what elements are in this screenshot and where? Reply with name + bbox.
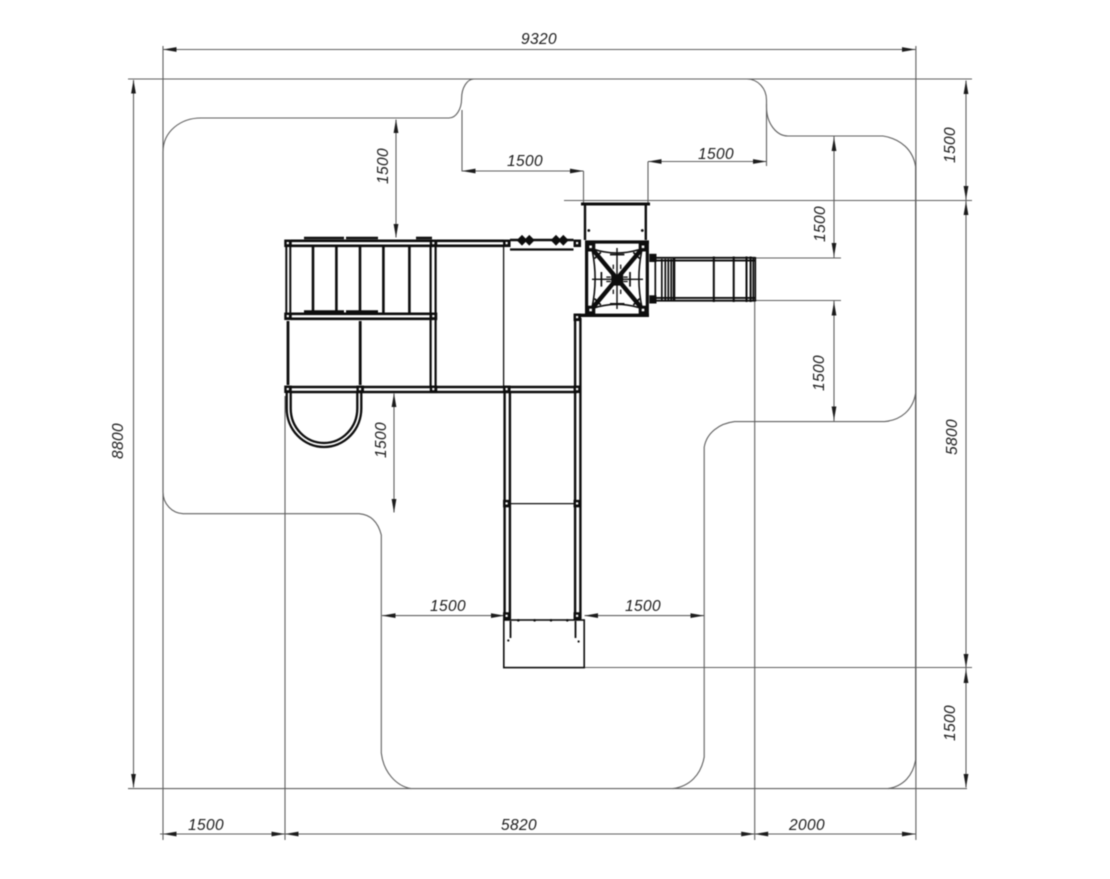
svg-text:1500: 1500 bbox=[698, 146, 734, 163]
svg-text:1500: 1500 bbox=[430, 598, 466, 615]
svg-text:1500: 1500 bbox=[373, 422, 390, 458]
svg-text:2000: 2000 bbox=[788, 817, 825, 834]
svg-text:1500: 1500 bbox=[942, 127, 959, 163]
svg-text:1500: 1500 bbox=[811, 355, 828, 391]
svg-text:5800: 5800 bbox=[944, 419, 961, 455]
svg-text:1500: 1500 bbox=[375, 148, 392, 184]
svg-text:1500: 1500 bbox=[812, 206, 829, 242]
svg-text:1500: 1500 bbox=[188, 817, 224, 834]
svg-text:1500: 1500 bbox=[942, 705, 959, 741]
svg-text:8800: 8800 bbox=[110, 423, 127, 459]
svg-text:5820: 5820 bbox=[501, 817, 537, 834]
svg-text:9320: 9320 bbox=[521, 31, 557, 48]
svg-text:1500: 1500 bbox=[625, 598, 661, 615]
svg-text:1500: 1500 bbox=[507, 153, 543, 170]
